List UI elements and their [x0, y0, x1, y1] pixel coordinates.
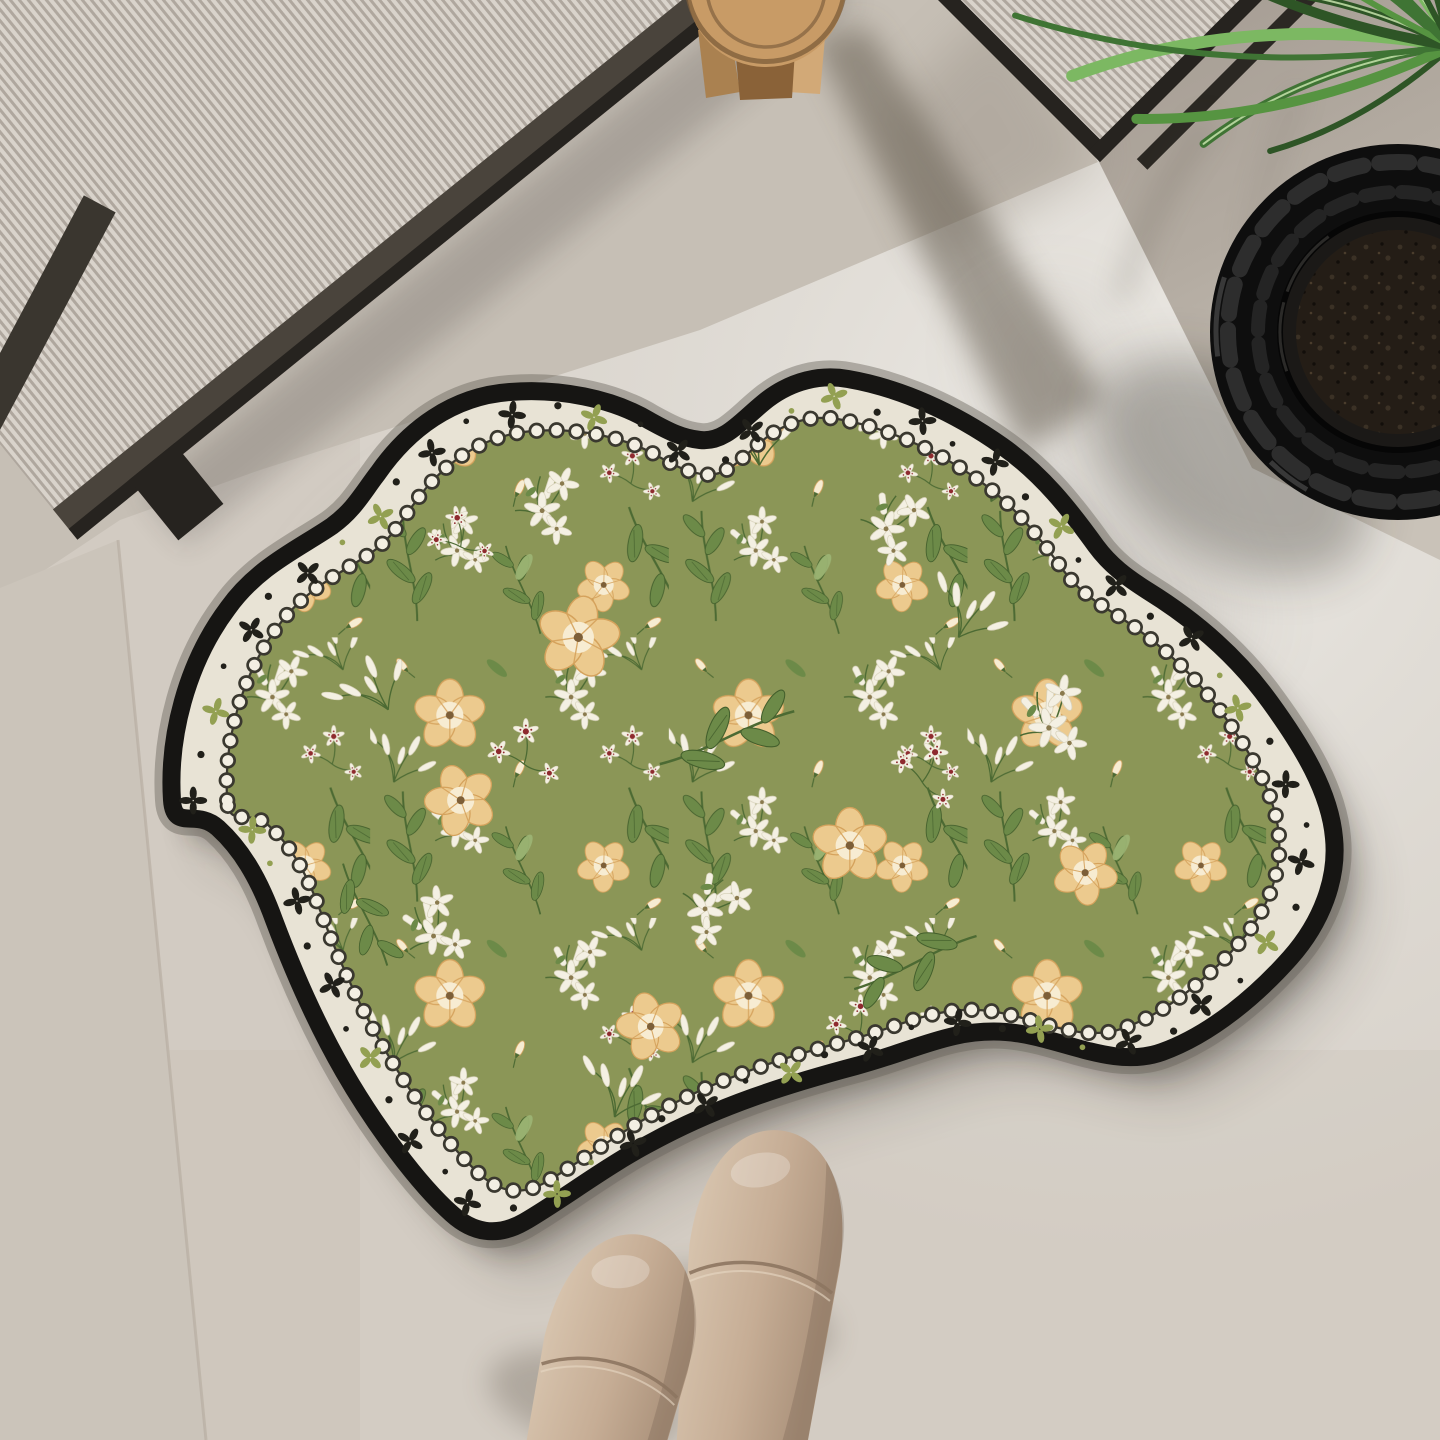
border-dot — [343, 1026, 349, 1032]
border-dot — [588, 1160, 594, 1166]
border-dot — [789, 408, 795, 414]
border-dot — [1217, 673, 1223, 679]
border-dot — [950, 441, 956, 447]
border-dot — [658, 1115, 665, 1122]
border-dot — [442, 1169, 448, 1175]
border-dot — [267, 860, 273, 866]
photo-canvas: Top-down photo of a cloud-shaped vintage… — [0, 0, 1440, 1440]
border-dot — [1080, 1044, 1086, 1050]
border-dot — [463, 418, 469, 424]
border-dot — [304, 942, 311, 949]
border-dot — [1022, 493, 1029, 500]
border-dot — [340, 540, 346, 546]
border-dot — [874, 409, 881, 416]
border-dot — [554, 402, 561, 409]
border-dot — [197, 751, 204, 758]
border-dot — [638, 421, 644, 427]
border-dot — [909, 1024, 915, 1030]
border-dot — [821, 1051, 828, 1058]
border-dot — [510, 1204, 517, 1211]
border-dot — [1170, 1028, 1177, 1035]
border-dot — [393, 478, 400, 485]
border-dot — [1076, 557, 1082, 563]
border-dot — [999, 1025, 1006, 1032]
border-dot — [265, 593, 272, 600]
border-dot — [1237, 978, 1243, 984]
border-dot — [1304, 822, 1310, 828]
scene: Top-down photo of a cloud-shaped vintage… — [0, 0, 1440, 1440]
border-dot — [385, 1096, 392, 1103]
border-dot — [1147, 613, 1154, 620]
border-dot — [743, 1078, 749, 1084]
border-dot — [1266, 738, 1273, 745]
border-dot — [722, 456, 729, 463]
border-dot — [221, 663, 227, 669]
border-dot — [1292, 904, 1299, 911]
